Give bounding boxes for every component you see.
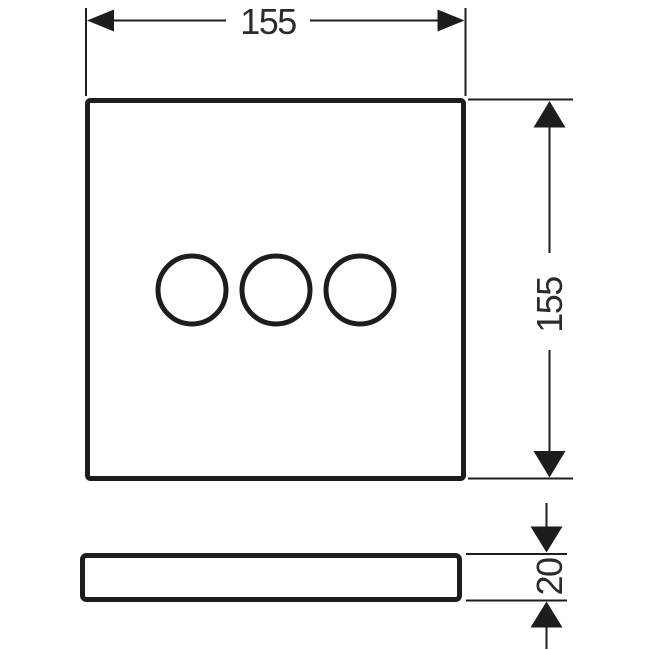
control-circle-middle <box>242 256 310 324</box>
thickness-dimension: 20 <box>466 503 570 649</box>
width-dimension: 155 <box>86 1 466 96</box>
arrow-up-icon <box>534 101 566 128</box>
arrow-right-icon <box>438 10 465 32</box>
control-circle-right <box>326 256 394 324</box>
plate-outline-side <box>83 556 460 600</box>
drawing-canvas: 155 155 20 <box>0 0 650 650</box>
side-view <box>83 556 460 600</box>
front-view <box>88 101 464 479</box>
height-dimension-label: 155 <box>529 277 570 333</box>
technical-drawing: 155 155 20 <box>0 0 650 650</box>
width-dimension-label: 155 <box>240 1 296 42</box>
arrow-down-icon <box>531 527 563 553</box>
thickness-dimension-label: 20 <box>529 558 570 596</box>
height-dimension: 155 <box>468 100 573 479</box>
arrow-down-icon <box>534 451 566 478</box>
plate-outline-front <box>88 101 464 479</box>
arrow-up-icon <box>531 602 563 628</box>
control-circle-left <box>158 256 226 324</box>
arrow-left-icon <box>87 10 114 32</box>
